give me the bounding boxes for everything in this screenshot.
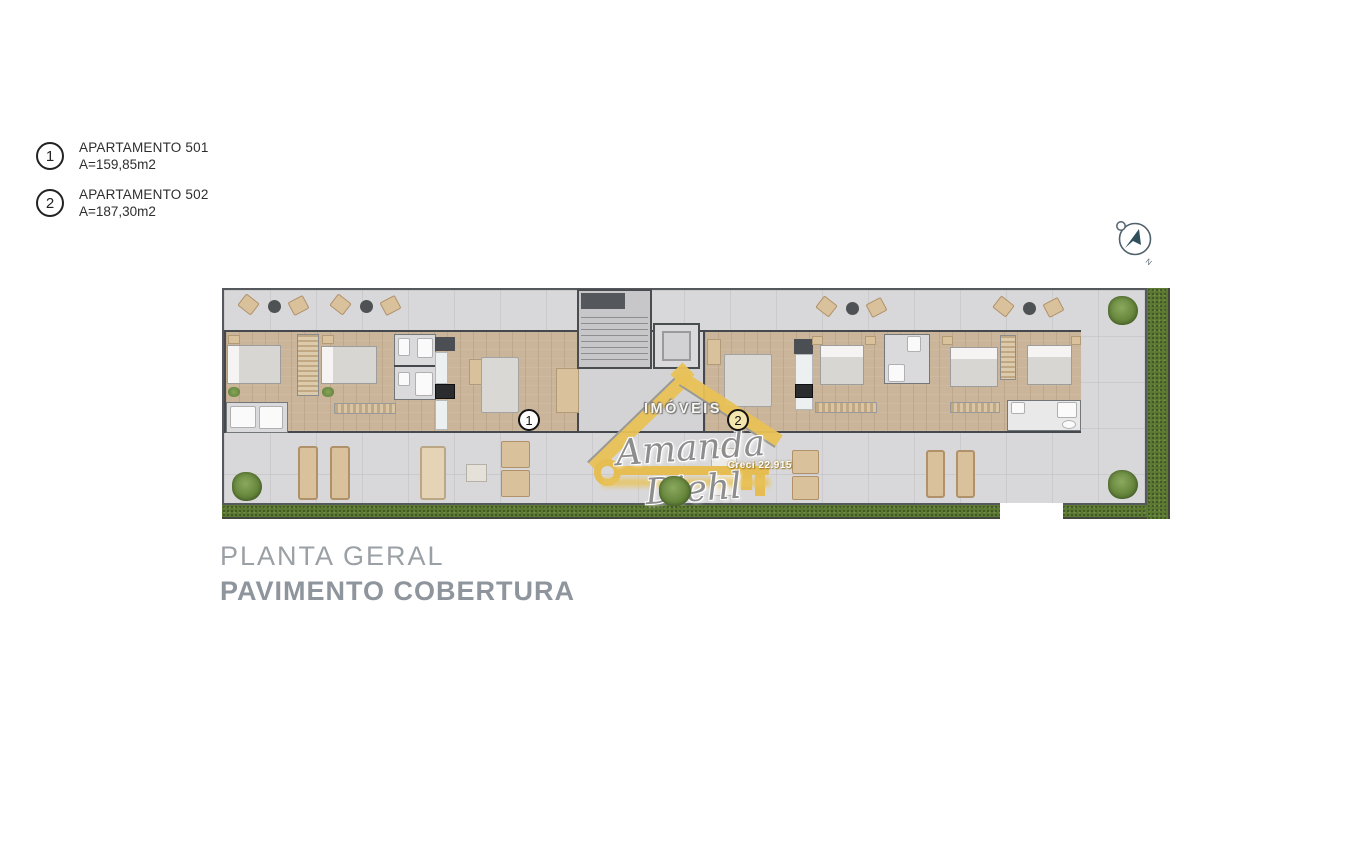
side-table [466, 464, 487, 482]
building-floor-plan [222, 288, 1170, 520]
sofa [481, 357, 519, 413]
seating-group [240, 294, 310, 322]
stove [795, 384, 813, 398]
grass-notch [1000, 503, 1063, 521]
legend-item-502: 2 APARTAMENTO 502 A=187,30m2 [36, 187, 209, 220]
seating-group [818, 296, 888, 324]
stairwell [577, 289, 652, 369]
armchair [501, 470, 530, 497]
legend-title-501: APARTAMENTO 501 [79, 140, 209, 156]
tree [659, 476, 691, 506]
armchair [792, 476, 819, 500]
wardrobe [297, 334, 319, 396]
furniture [259, 406, 283, 429]
plan-title: PLANTA GERAL [220, 541, 575, 572]
bathtub [415, 372, 433, 396]
console [707, 339, 721, 365]
nightstand [812, 336, 823, 345]
shower [417, 338, 433, 358]
stove [435, 384, 455, 399]
dresser [815, 402, 877, 413]
sun-lounger [330, 446, 350, 500]
svg-text:N: N [1144, 257, 1154, 267]
bistro-table [1023, 302, 1036, 315]
elevator-cab [662, 331, 691, 361]
stair-landing [581, 293, 625, 309]
lounge-chair [379, 295, 401, 316]
furniture [230, 406, 256, 428]
legend-circle-2: 2 [36, 189, 64, 217]
sink [398, 338, 410, 356]
bed [321, 346, 377, 384]
bench [420, 446, 446, 500]
nightstand [1071, 336, 1081, 345]
fridge [435, 337, 455, 351]
tree [1108, 296, 1138, 325]
sun-lounger [926, 450, 945, 498]
bistro-table [268, 300, 281, 313]
kitchen-counter [795, 354, 813, 410]
nightstand [865, 336, 876, 345]
legend-circle-1: 1 [36, 142, 64, 170]
sofa [724, 354, 772, 407]
lounge-chair [992, 295, 1015, 317]
legend-area-502: A=187,30m2 [79, 204, 209, 220]
tv-cabinet [556, 368, 579, 413]
floor-plan-page: 1 APARTAMENTO 501 A=159,85m2 2 APARTAMEN… [0, 0, 1366, 853]
lounge-chair [1042, 297, 1064, 318]
sink [1011, 402, 1025, 414]
bed [227, 345, 281, 384]
sun-lounger [298, 446, 318, 500]
nightstand [322, 335, 334, 344]
unit-badge-1: 1 [518, 409, 540, 431]
seating-group [332, 294, 402, 322]
wall [394, 365, 436, 367]
bed [950, 347, 998, 387]
toilet [398, 372, 410, 386]
unit-badge-2: 2 [727, 409, 749, 431]
plan-subtitle: PAVIMENTO COBERTURA [220, 576, 575, 607]
seating-group [995, 296, 1065, 324]
compass-north-icon: N [1108, 216, 1162, 270]
stair-treads [581, 317, 648, 365]
legend-item-501: 1 APARTAMENTO 501 A=159,85m2 [36, 140, 209, 173]
kitchen-counter [435, 400, 448, 430]
shower [888, 364, 905, 382]
kitchen-counter [435, 352, 448, 384]
lounge-chair [815, 295, 838, 317]
nightstand [942, 336, 953, 345]
legend: 1 APARTAMENTO 501 A=159,85m2 2 APARTAMEN… [36, 140, 209, 234]
grass-strip-right [1147, 288, 1170, 519]
toilet [1062, 420, 1076, 429]
lounge-chair [329, 293, 352, 315]
armchair [792, 450, 819, 474]
plant [228, 387, 240, 397]
lounge-chair [287, 295, 309, 316]
sink [907, 336, 921, 352]
armchair [501, 441, 530, 468]
bistro-table [360, 300, 373, 313]
lounge-chair [237, 293, 260, 315]
dresser [950, 402, 1000, 413]
bed [1027, 345, 1072, 385]
kitchen-hood [794, 339, 813, 354]
wardrobe [1000, 335, 1016, 380]
plan-caption: PLANTA GERAL PAVIMENTO COBERTURA [220, 541, 575, 607]
bistro-table [846, 302, 859, 315]
shower [1057, 402, 1077, 418]
legend-area-501: A=159,85m2 [79, 157, 209, 173]
tree [1108, 470, 1138, 499]
lounge-chair [711, 448, 737, 496]
elevator [653, 323, 700, 369]
nightstand [228, 335, 240, 344]
bed [820, 345, 864, 385]
legend-title-502: APARTAMENTO 502 [79, 187, 209, 203]
tree [232, 472, 262, 501]
plant [322, 387, 334, 397]
dresser [334, 403, 396, 414]
sun-lounger [956, 450, 975, 498]
lounge-chair [865, 297, 887, 318]
